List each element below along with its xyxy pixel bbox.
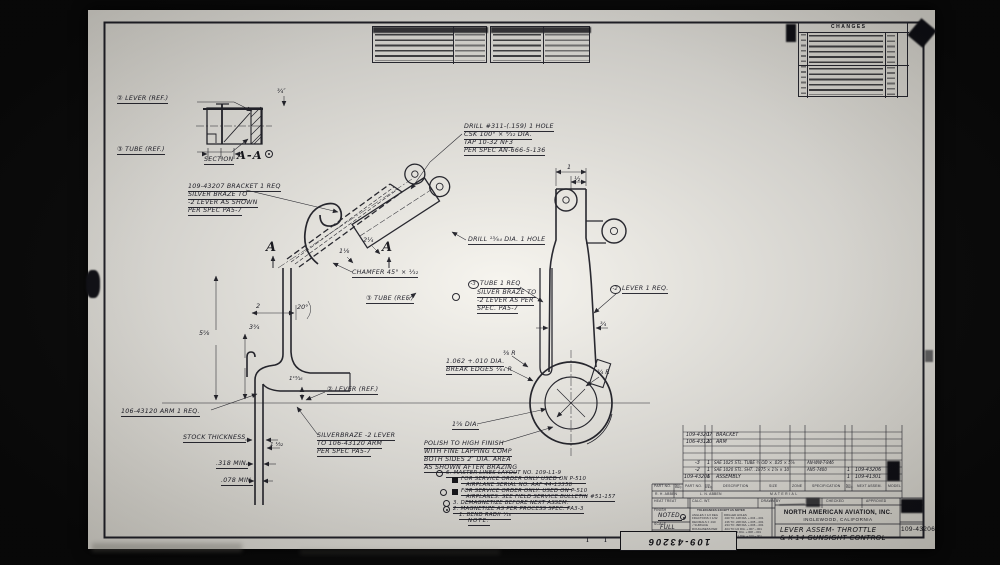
drill-tap-callout-3: TAP 10-32 NF3 [464,139,513,147]
arm-text: 106-43120 ARM 1 REQ. [121,408,200,417]
changes-entries-group2 [809,68,883,95]
polish-callout-1: POLISH TO HIGH FINISH [424,440,504,448]
lever-ref-text: ② LEVER (REF.) [327,386,378,395]
parts-next2-number: 109-41301 [855,475,881,480]
parts-row3-part: -3 [695,461,700,466]
parts-row1-req: 1 [707,433,710,438]
revision-table-right-divider [543,27,544,64]
changes-title: CHANGES [831,25,867,30]
parts-header-model: MODEL [888,485,901,489]
note-4-flag-icon [440,489,447,496]
tube-line1: TUBE 1 REQ [480,280,521,289]
min-318-callout: .318 MIN. [216,460,248,468]
stock-text: STOCK THICKNESS [183,434,246,443]
parts-header-part: PART NO. [685,485,702,489]
stock-thickness-callout: STOCK THICKNESS [183,434,246,442]
changes-margin-mark [786,24,796,42]
tube-callout-4: SPEC. PA5-7 [477,305,518,313]
lever-text: LEVER 1 REQ. [622,285,668,294]
tube-line4: SPEC. PA5-7 [477,305,518,314]
changes-title-rule [799,32,909,33]
drawn-by-signature [779,499,805,506]
tube-ref-callout: ③ TUBE (REF.) [366,295,414,303]
company-location: INGLEWOOD, CALIFORNIA [778,518,898,523]
dim-3-4: ¾ [600,321,606,327]
changes-block: CHANGES [798,22,908,97]
finish-flag-icon [680,514,686,520]
parts-row1-desc: BRACKET [716,433,738,438]
changes-letter-column [801,34,806,94]
left-margin-blob [86,270,100,298]
parts-row4-req: 1 [707,468,710,473]
parts-row3-desc: SAE 1025 STL. TUBE ¾ OD × .035 × 5⅞ [714,461,795,465]
drawing-title-line2: & K-14 GUNSIGHT CONTROL [780,534,886,542]
parts-header-req-right: NO. REQ. [846,484,853,490]
section-word-label: SECTION [204,156,234,164]
revision-table-right [490,26,590,63]
silverbraze-callout-3: PER SPEC PA5-7 [317,448,371,456]
finish-value-text: NOTED. [658,513,682,521]
changes-entries-group1 [809,35,883,63]
parts-header-size: SIZE [769,485,777,489]
tube-revision-flag-icon [452,293,460,301]
dim-2: 2 [256,303,260,309]
section-arrow-a-right: A [382,241,392,254]
parts-header-zone: ZONE [792,485,802,489]
date-stamp-smudge [806,498,820,507]
parts-header-part-left: PART NO. [654,485,671,489]
material-label: MATERIAL [770,493,799,497]
signature-2: L. N. ABBEN [700,493,722,497]
dim-half: ½ [574,176,580,182]
calc-wt-label: CALC. WT. [692,500,711,504]
section-dim-label: ¾″ [277,88,286,94]
dia-158-callout: 1⅝ DIA. [452,421,479,429]
changes-divider-2 [885,32,886,98]
parts-row2-req: 1 [707,440,710,445]
drill-hole-callout: DRILL ¹³⁄₆₄ DIA. 1 HOLE [468,236,545,244]
section-lever-ref-text: ② LEVER (REF.) [117,95,168,104]
parts-row2-desc: ARM [716,440,727,445]
tube-callout-3: -2 LEVER AS PER [477,297,534,305]
dim-1-1-32: 1 ¹⁄₃₂ [270,443,283,449]
drill-tap-callout-1: DRILL #311-(.159) 1 HOLE [464,123,554,131]
dim-3-4-r: ¾ R [597,369,610,375]
drill-tap-line4: PER SPEC AN-666-5-136 [464,147,545,156]
dim-1-1-8: 1⅛ [339,248,349,254]
parts-next2-qty: 1 [847,475,850,480]
right-margin-blob [925,350,933,362]
parts-row4-spec: AN5-7400 [807,468,827,472]
revision-table-left-header [373,27,488,33]
bottom-left-streak [92,543,242,552]
approved-label: APPROVED [866,500,886,504]
parts-model-smudge [887,461,900,481]
revision-table-left-divider [453,27,454,64]
notes-title-text: NOTE: [468,518,490,526]
polish-callout-2: WITH FINE LAPPING COMP [424,448,512,456]
note-2-flag-icon [443,506,450,513]
scanned-drawing-photo: CHANGES ② LEVER (REF.) ③ TUBE (REF.) ¾″ … [0,0,1000,565]
arm-callout: 106-43120 ARM 1 REQ. [121,408,200,416]
bore-line2: BREAK EDGES ¹⁄₆₄ R [446,366,512,375]
section-tube-ref-text: ③ TUBE (REF.) [117,146,165,155]
drawing-number: 109-43206 [901,527,935,533]
parts-row3-req: 1 [707,461,710,466]
min-078-text: .078 MIN. [221,477,253,486]
revision-table-left-rows2 [455,34,485,61]
parts-row4-desc: SAE 1020 STL. SHT. .1875 × 1⅞ × 10 [714,468,789,472]
bottom-center-streak [300,549,500,555]
parts-header-desc: DESCRIPTION [723,485,748,489]
section-flag-icon [265,150,273,158]
parts-header-spec: SPECIFICATION [812,485,840,489]
heat-treat-label: HEAT TREAT [654,500,676,504]
bracket-line4: PER SPEC PA5-7 [188,207,242,216]
drill-tap-callout-2: CSK 100° × ⁹⁄₃₂ DIA. [464,131,532,139]
dim-20deg: 20° [297,304,308,310]
note-4-box-marker [452,489,458,495]
sheet-roman-numeral-1: I [586,536,589,544]
min-078-callout: .078 MIN. [221,477,253,485]
revision-table-left [372,26,487,63]
revision-table-left-rows [375,34,453,61]
silverbraze-callout-2: TO 106-43120 ARM [317,440,382,448]
revision-table-right-rows [493,34,541,61]
note-6-flag-icon [436,470,443,477]
parts-header-req-left: NO. REQ. [675,484,682,490]
tube-callout-1: -3TUBE 1 REQ [468,280,521,289]
bracket-callout-3: -2 LEVER AS SHOWN [188,199,258,207]
parts-header-req: NO. REQ. [706,484,713,490]
tube-ref-text: ③ TUBE (REF.) [366,295,414,304]
dim-5-5-8: 5⅝ [199,330,209,336]
polish-callout-3: BOTH SIDES 2″ DIA. AREA [424,456,511,464]
checked-label: CHECKED [826,500,844,504]
note-5-box-marker [452,477,458,483]
lever-figure [530,189,626,458]
changes-approval-column [887,35,895,95]
section-name-label: A-A [237,150,263,162]
bracket-callout-1: 109-43207 BRACKET 1 REQ [188,183,281,191]
bore-callout-2: BREAK EDGES ¹⁄₆₄ R [446,366,512,374]
signature-1: R. H. ABBEN [655,493,677,497]
silverbraze-callout-1: SILVERBRAZE -2 LEVER [317,432,395,440]
finish-value: NOTED. [658,513,682,520]
dim-1: 1 [567,164,571,170]
parts-row3-spec: AN-WW-T-846 [807,461,834,465]
chamfer-callout: CHAMFER 45° × ¹⁄₃₂ [352,269,418,277]
parts-row4-part: -2 [695,468,700,473]
tilted-bracket [342,153,454,248]
title-block-dark-cell [901,499,923,513]
dim-2-1-4: 2¼ [363,237,373,243]
sheet-roman-numeral-2: I [604,536,607,544]
parts-row5-desc: ASSEMBLY [716,475,741,480]
revision-table-right-header [491,27,591,33]
parts-row5-req: 1 [707,475,710,480]
revision-table-right-rows2 [545,34,589,61]
tube-mark-circle: -3 [468,280,479,289]
notes-title: NOTE: [468,518,490,524]
min-318-text: .318 MIN. [216,460,248,469]
changes-divider-3 [897,32,898,98]
chamfer-text: CHAMFER 45° × ¹⁄₃₂ [352,269,418,278]
parts-next1-number: 109-43206 [855,468,881,473]
parts-header-next: NEXT ASSEM. [857,485,882,489]
drawn-by-label: DRAWN BY [761,500,781,504]
bracket-callout-2: SILVER BRAZE TO [188,191,247,199]
bracket-callout-4: PER SPEC PA5-7 [188,207,242,215]
dia-158-text: 1⅝ DIA. [452,421,479,430]
section-word-text: SECTION [204,156,234,165]
bottom-stamp-number: 109-43206 [620,531,737,551]
tube-callout-2: SILVER BRAZE TO [477,289,536,297]
lever-mark-circle: -2 [610,285,621,294]
section-lever-ref-label: ② LEVER (REF.) [117,95,168,103]
section-arrow-a-left: A [266,241,276,254]
dim-1-13-16: 1¹³⁄₁₆ [289,377,302,383]
dim-3-8-r: ⅜ R [503,350,516,356]
drill-hole-text: DRILL ¹³⁄₆₄ DIA. 1 HOLE [468,236,545,245]
lever-callout: -2LEVER 1 REQ. [610,285,668,294]
bore-callout-1: 1.062 +.010 DIA. [446,358,504,366]
parts-next1-qty: 1 [847,468,850,473]
dim-3-3-4: 3¾ [249,324,259,330]
lever-ref-callout: ② LEVER (REF.) [327,386,378,394]
section-tube-ref-label: ③ TUBE (REF.) [117,146,165,154]
braze-line3: PER SPEC PA5-7 [317,448,371,457]
drill-tap-callout-4: PER SPEC AN-666-5-136 [464,147,545,155]
